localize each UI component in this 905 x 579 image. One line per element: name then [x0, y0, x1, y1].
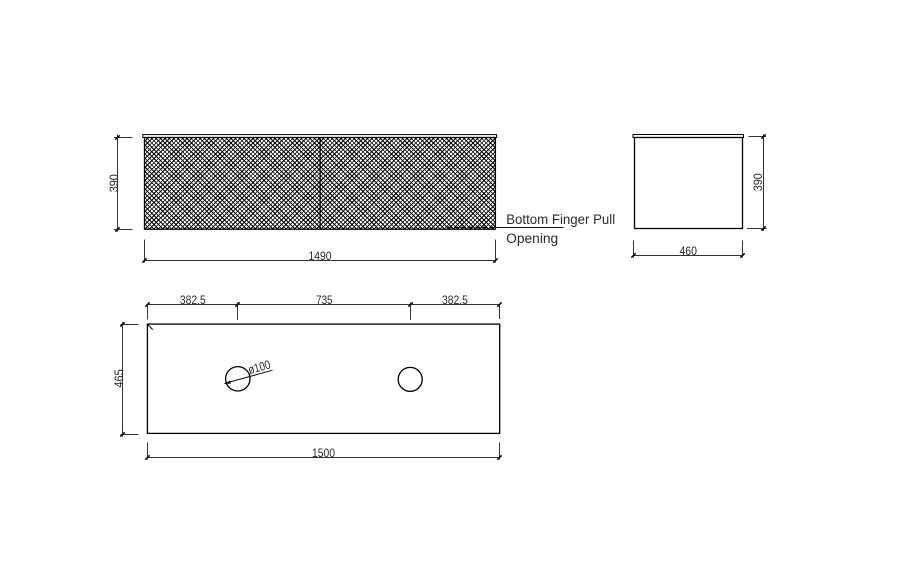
svg-text:382.5: 382.5 [180, 293, 206, 307]
svg-text:Bottom Finger Pull: Bottom Finger Pull [506, 212, 615, 227]
svg-text:382.5: 382.5 [442, 293, 468, 307]
svg-text:735: 735 [316, 293, 332, 307]
svg-text:390: 390 [751, 173, 765, 191]
svg-text:1500: 1500 [312, 446, 335, 460]
svg-text:460: 460 [679, 244, 697, 258]
svg-text:390: 390 [107, 174, 121, 192]
svg-text:1490: 1490 [309, 249, 332, 263]
svg-text:Opening: Opening [506, 231, 558, 246]
svg-text:465: 465 [112, 369, 126, 388]
